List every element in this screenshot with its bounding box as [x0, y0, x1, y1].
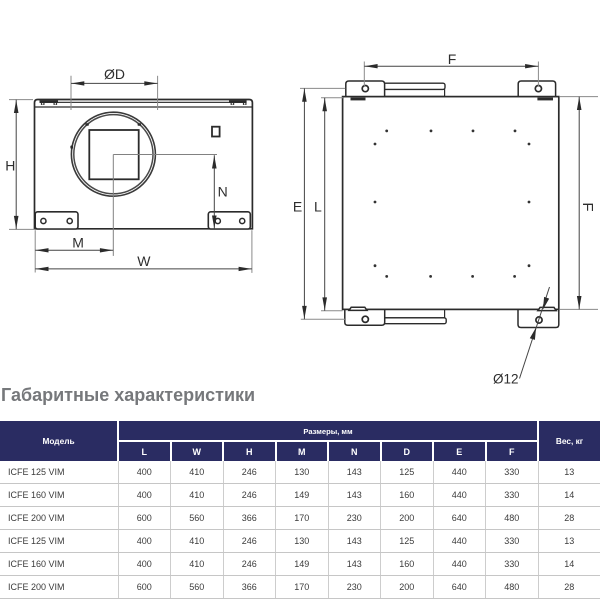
svg-text:H: H: [5, 158, 15, 174]
svg-text:Ø12: Ø12: [493, 372, 519, 387]
svg-text:F: F: [448, 51, 457, 67]
svg-text:W: W: [137, 253, 151, 269]
svg-text:ØD: ØD: [104, 66, 125, 82]
svg-text:E: E: [293, 199, 302, 215]
svg-text:N: N: [218, 184, 228, 200]
svg-text:F: F: [579, 202, 596, 211]
svg-text:M: M: [72, 235, 84, 251]
svg-text:L: L: [314, 199, 322, 215]
